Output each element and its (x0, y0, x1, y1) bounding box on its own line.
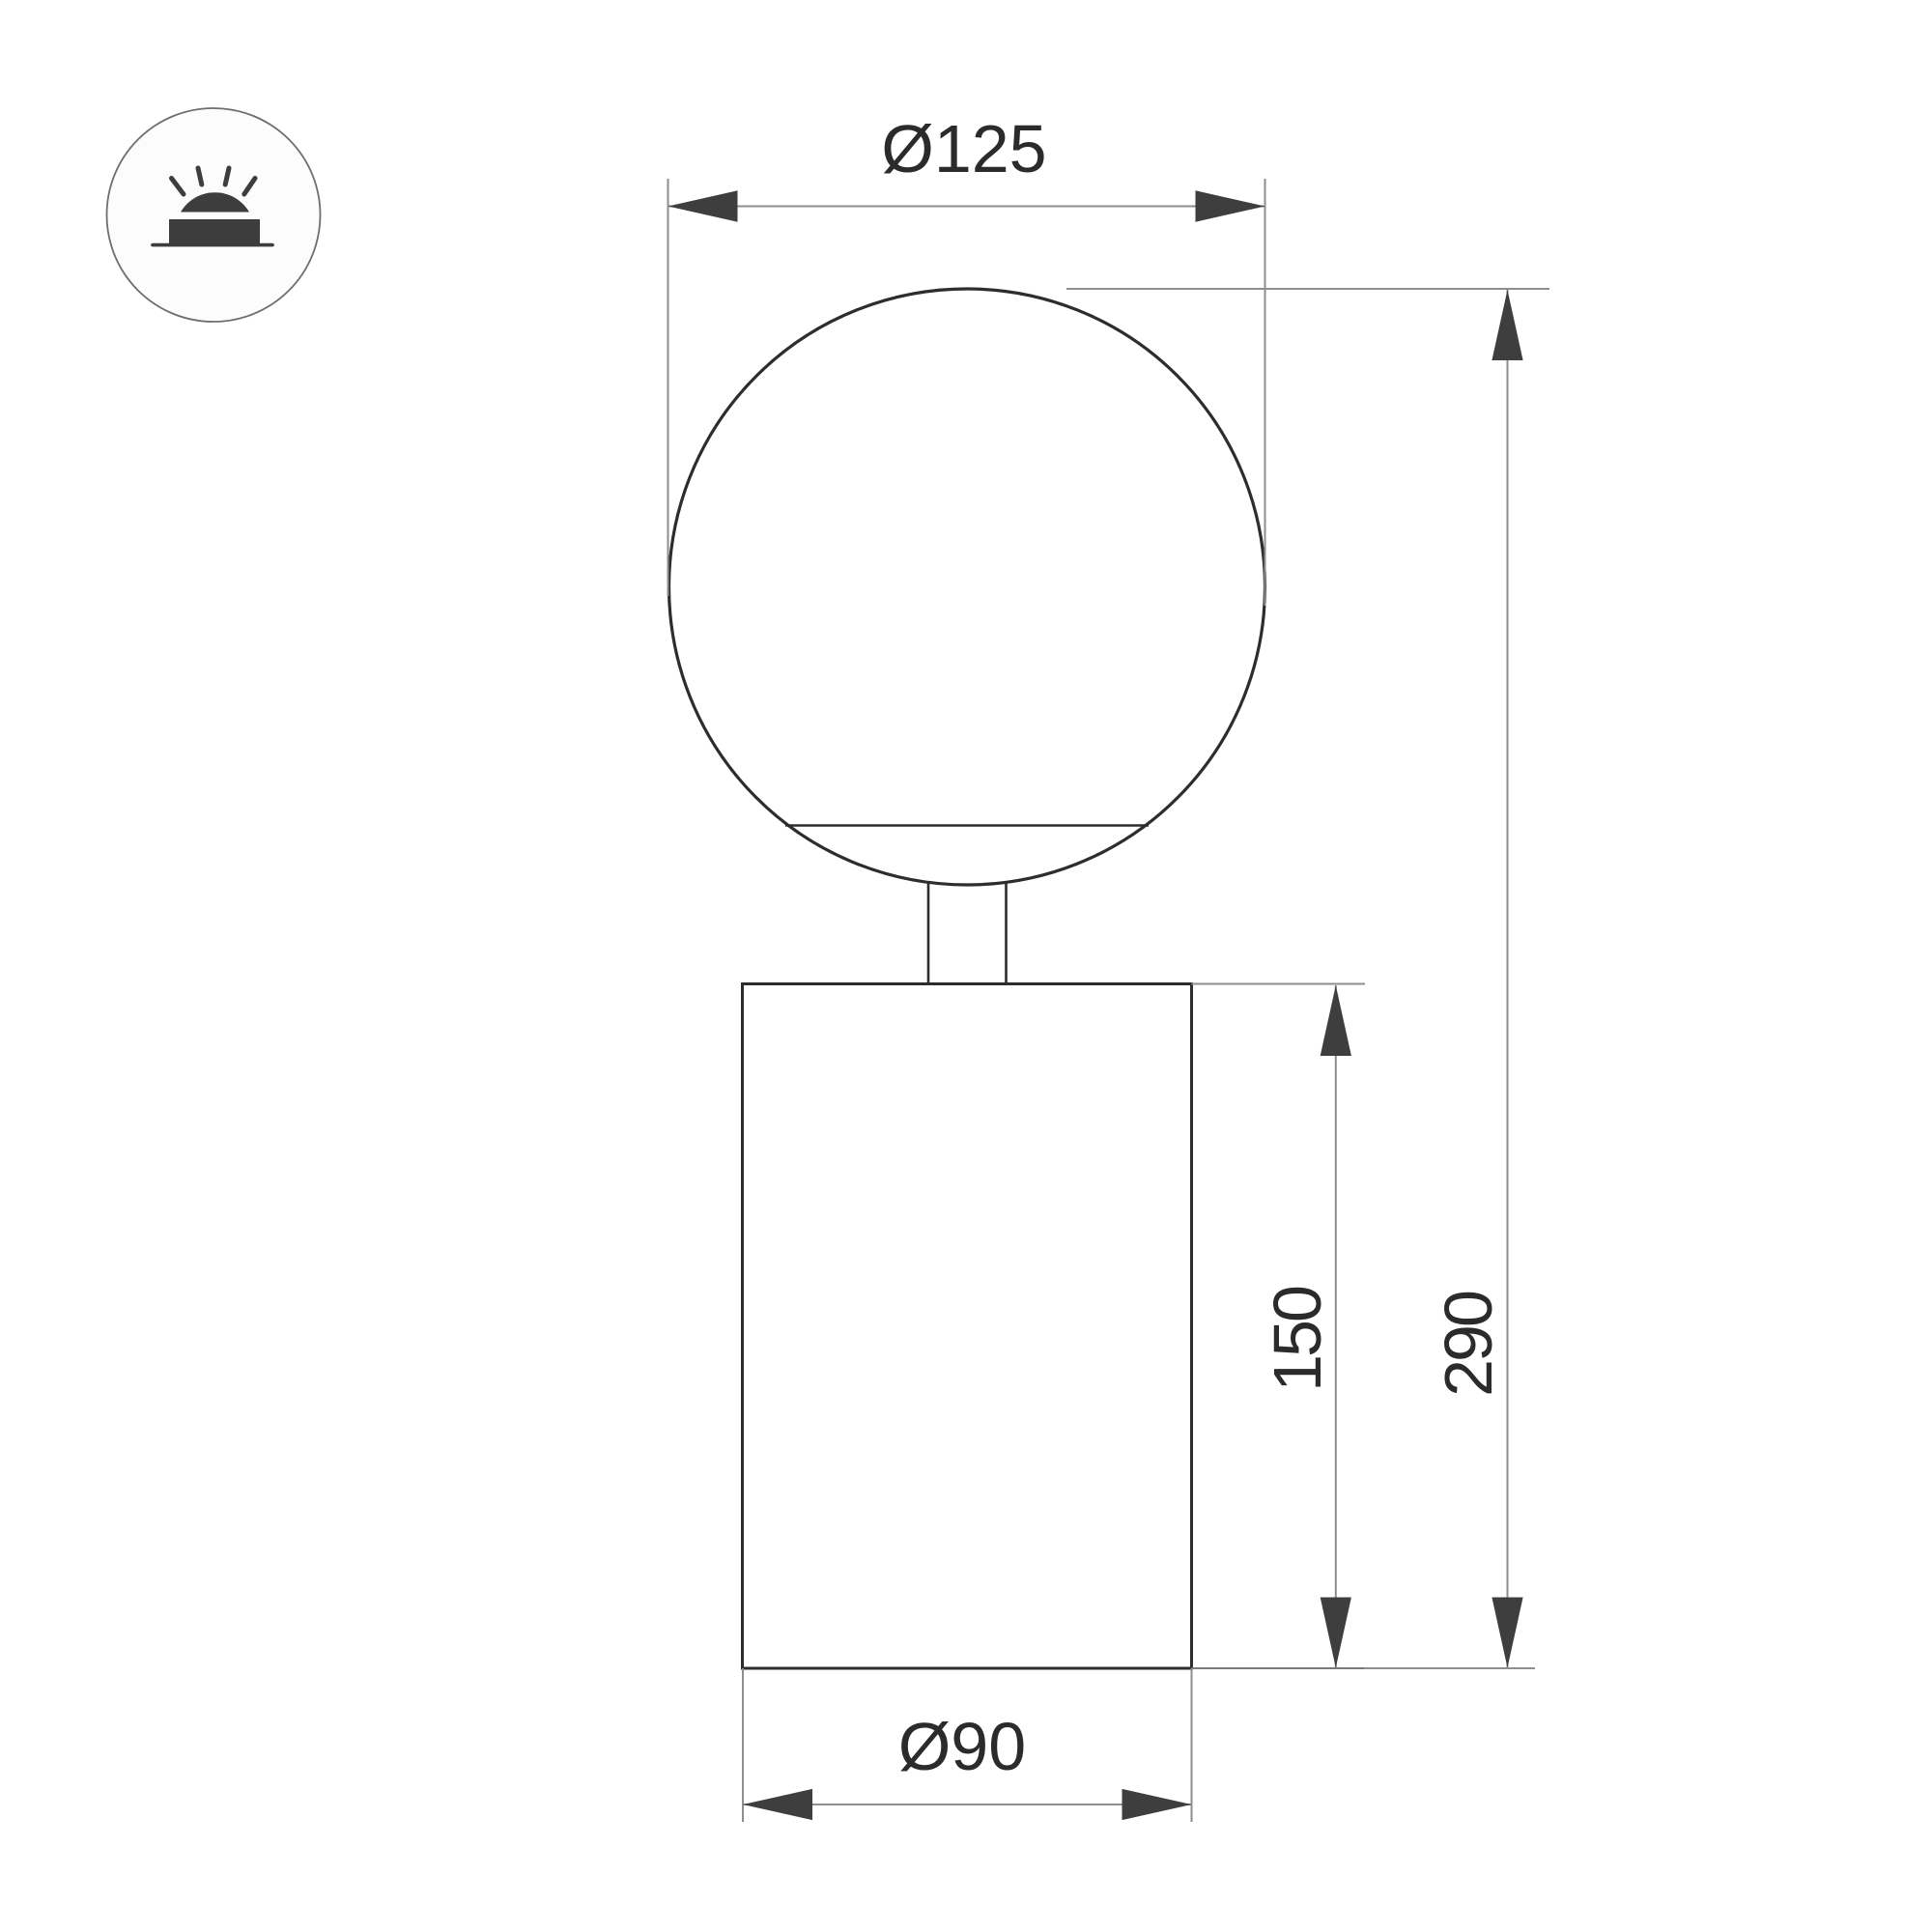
svg-text:290: 290 (1431, 1292, 1506, 1397)
svg-text:Ø125: Ø125 (881, 111, 1046, 186)
svg-text:Ø90: Ø90 (898, 1709, 1026, 1784)
svg-text:150: 150 (1260, 1287, 1335, 1392)
